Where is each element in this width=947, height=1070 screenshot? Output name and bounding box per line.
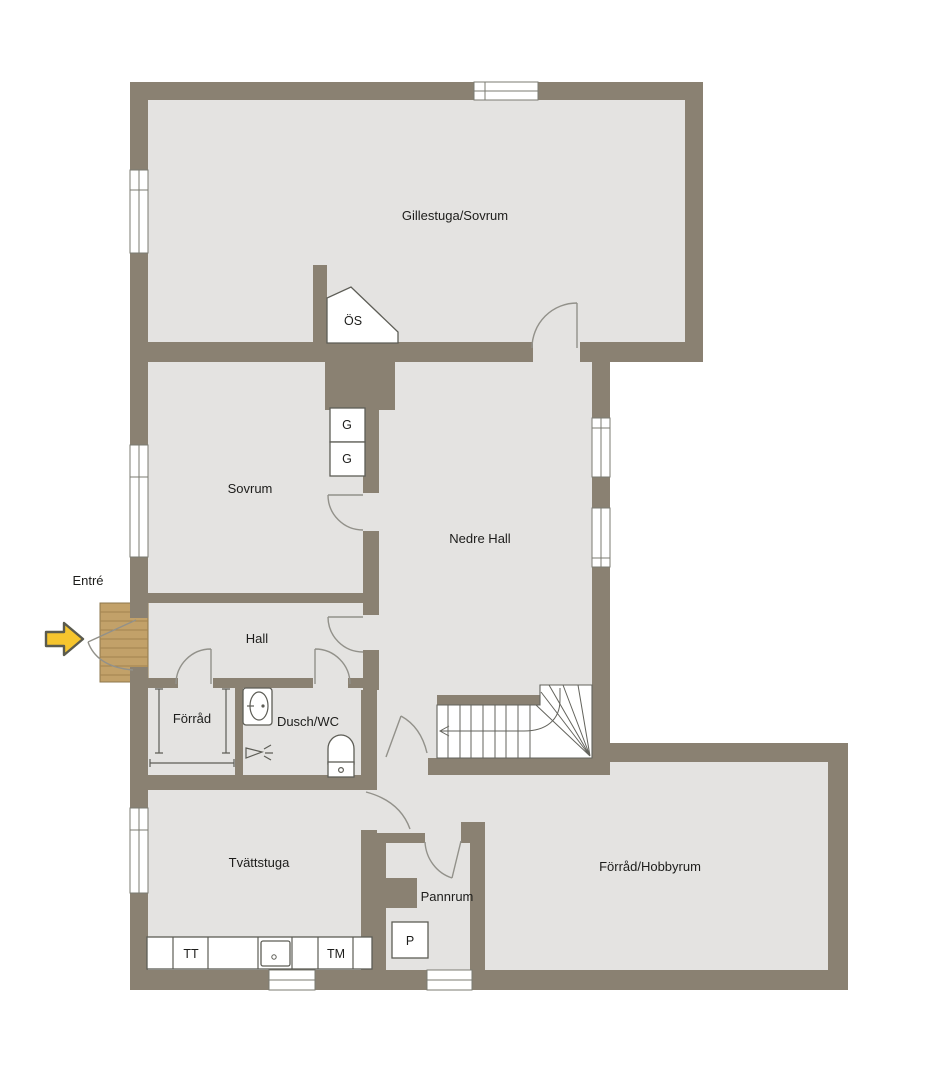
room-label-tvattstuga: Tvättstuga (229, 855, 290, 870)
fireplace-label: ÖS (344, 314, 362, 328)
boiler-label: P (406, 934, 414, 948)
room-label-forrad: Förråd (173, 711, 211, 726)
room-label-gillestuga: Gillestuga/Sovrum (402, 208, 508, 223)
wardrobe-label-2: G (342, 452, 352, 466)
room-label-hall: Hall (246, 631, 269, 646)
window-right-nedre-hall-2 (592, 508, 610, 567)
window-left-sovrum (130, 445, 148, 557)
boiler-chimney-block (386, 878, 417, 908)
floor-plan: Gillestuga/Sovrum ÖS Sovrum Nedre Hall H… (0, 0, 947, 1065)
room-label-dusch-wc: Dusch/WC (277, 714, 339, 729)
wardrobe-label-1: G (342, 418, 352, 432)
entrance-arrow-icon (46, 623, 83, 655)
window-top (474, 82, 538, 100)
room-label-nedre-hall: Nedre Hall (449, 531, 511, 546)
floor-door-gap (533, 342, 580, 362)
chimney-block (325, 362, 395, 410)
washer-label: TM (327, 947, 345, 961)
entrance-label: Entré (72, 573, 103, 588)
dryer-label: TT (183, 947, 199, 961)
window-bottom-tvattstuga (269, 970, 315, 990)
window-bottom-pannrum (427, 970, 472, 990)
room-label-forrad-hobbyrum: Förråd/Hobbyrum (599, 859, 701, 874)
floor-plan-page: Gillestuga/Sovrum ÖS Sovrum Nedre Hall H… (0, 0, 947, 1065)
window-right-nedre-hall-1 (592, 418, 610, 477)
room-label-sovrum: Sovrum (228, 481, 273, 496)
room-label-pannrum: Pannrum (421, 889, 474, 904)
sink-icon (243, 688, 272, 725)
toilet-icon (328, 735, 354, 777)
window-left-gillestuga (130, 170, 148, 253)
chimney-stub (313, 265, 327, 343)
laundry-sink-icon (261, 941, 290, 966)
window-left-tvattstuga (130, 808, 148, 893)
